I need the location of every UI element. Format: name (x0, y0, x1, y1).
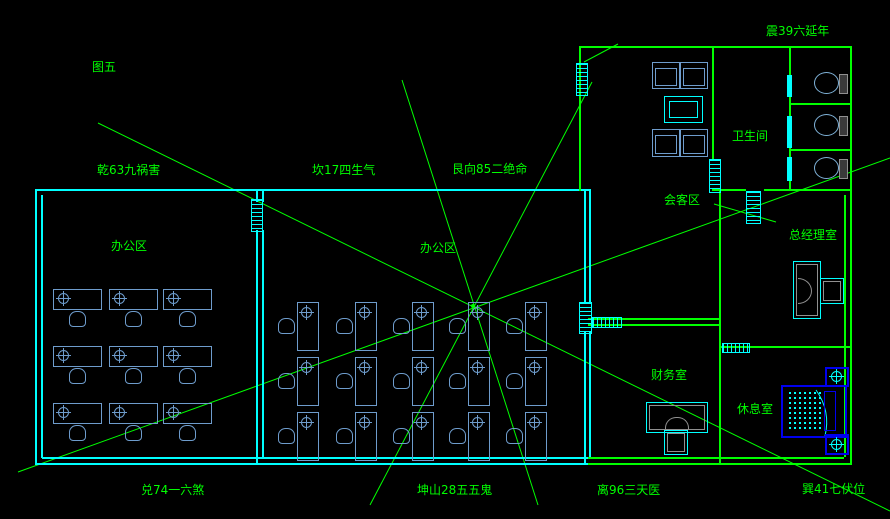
annotation-xun: 巽41七伏位 (802, 482, 865, 496)
monitor-icon (529, 362, 540, 373)
shower-dot (799, 412, 801, 414)
shower-dot (804, 427, 806, 429)
annotation-gen: 艮向85二绝命 (452, 162, 527, 176)
wall-bottom-right-outer (588, 463, 852, 465)
wall-annex-top (579, 46, 852, 48)
shower-dot (809, 417, 811, 419)
label-office-left: 办公区 (111, 239, 147, 253)
toilet-icon (814, 114, 839, 136)
shower-dot (794, 402, 796, 404)
label-finance: 财务室 (651, 368, 687, 382)
toilet-tank-icon (839, 116, 848, 136)
window-annex (576, 63, 588, 96)
shower-dot (799, 402, 801, 404)
shower-dot (809, 427, 811, 429)
shower-dot (819, 422, 821, 424)
office-chair (278, 373, 295, 389)
office-chair (179, 425, 196, 441)
office-chair (506, 373, 523, 389)
annotation-dui: 兑74一六煞 (141, 483, 204, 497)
door-office-middle (579, 302, 592, 334)
monitor-icon (114, 350, 125, 361)
annotation-zhen: 震39六延年 (766, 24, 829, 38)
shower-dot (794, 427, 796, 429)
shower-dot (794, 422, 796, 424)
monitor-icon (472, 362, 483, 373)
toilet-icon (814, 72, 839, 94)
window-gm-bottom (722, 343, 750, 353)
window-meeting-bottom (592, 317, 622, 328)
monitor-icon (301, 417, 312, 428)
shower-dot (804, 397, 806, 399)
shower-dot (794, 392, 796, 394)
door-office-left (251, 199, 263, 232)
shower-dot (799, 427, 801, 429)
monitor-icon (58, 407, 69, 418)
monitor-icon (168, 293, 179, 304)
shower-dot (814, 427, 816, 429)
shower-dot (789, 412, 791, 414)
shower-dot (819, 402, 821, 404)
door-restroom (709, 159, 721, 193)
sector-lines (0, 0, 890, 519)
gm-desk (793, 261, 821, 319)
office-chair (336, 318, 353, 334)
monitor-icon (472, 417, 483, 428)
monitor-icon (359, 307, 370, 318)
shower-dot (804, 412, 806, 414)
shower-dot (799, 417, 801, 419)
sofa (652, 62, 680, 89)
wall-divider1 (256, 230, 258, 464)
wall-gm-left (719, 191, 721, 463)
shower-dot (814, 397, 816, 399)
wall-stall-div2 (789, 149, 850, 151)
shower-dot (814, 407, 816, 409)
wall-bath-left (712, 48, 714, 159)
monitor-icon (58, 293, 69, 304)
label-meeting-area: 会客区 (664, 193, 700, 207)
cad-floorplan-canvas[interactable]: 图五 震39六延年 乾63九祸害 坎17四生气 艮向85二绝命 兑74一六煞 坤… (0, 0, 890, 519)
office-chair (125, 311, 142, 327)
door-meeting (746, 191, 761, 224)
label-gm-office: 总经理室 (789, 228, 837, 242)
shower-dot (789, 392, 791, 394)
monitor-icon (168, 350, 179, 361)
label-lounge: 休息室 (737, 402, 773, 416)
wall-divider2 (584, 189, 586, 303)
wall-divider2b (589, 189, 591, 303)
annotation-qian: 乾63九祸害 (97, 163, 160, 177)
office-chair (393, 373, 410, 389)
lounge-fixture-top (825, 367, 849, 387)
sofa (680, 129, 708, 157)
stall-door-3 (787, 157, 792, 181)
coffee-table (664, 96, 703, 123)
shower-dot (809, 402, 811, 404)
label-office-middle: 办公区 (420, 241, 456, 255)
label-restroom: 卫生间 (732, 129, 768, 143)
shower-dot (799, 392, 801, 394)
gm-chair (820, 278, 844, 304)
monitor-icon (472, 307, 483, 318)
monitor-icon (114, 407, 125, 418)
office-chair (336, 428, 353, 444)
stall-door-2 (787, 116, 792, 148)
monitor-icon (416, 307, 427, 318)
shower-dot (794, 412, 796, 414)
office-chair (506, 318, 523, 334)
finance-chair (664, 430, 688, 455)
shower-dot (814, 417, 816, 419)
office-chair (69, 425, 86, 441)
shower-dot (799, 422, 801, 424)
monitor-icon (359, 417, 370, 428)
shower-dot (819, 427, 821, 429)
office-chair (69, 311, 86, 327)
office-chair (69, 368, 86, 384)
shower-door-panel (824, 391, 836, 431)
wall-divider2 (584, 332, 586, 464)
shower-dot (814, 402, 816, 404)
monitor-icon (416, 417, 427, 428)
finance-desk (646, 402, 708, 433)
shower-dot (799, 407, 801, 409)
annotation-kan: 坎17四生气 (312, 163, 375, 177)
annotation-li: 离96三天医 (597, 483, 660, 497)
monitor-icon (168, 407, 179, 418)
lounge-fixture-bottom (825, 434, 849, 455)
shower-dot (794, 417, 796, 419)
monitor-icon (114, 293, 125, 304)
shower-dot (789, 407, 791, 409)
shower-dot (789, 402, 791, 404)
wall-left-inner (41, 195, 43, 458)
shower-dot (814, 422, 816, 424)
shower-dot (804, 417, 806, 419)
wall-bottom-outer (35, 463, 590, 465)
office-chair (179, 311, 196, 327)
shower-dot (789, 417, 791, 419)
wall-right-outer (850, 46, 852, 465)
shower-dot (804, 402, 806, 404)
sofa (652, 129, 680, 157)
wall-divider2b (589, 332, 591, 458)
office-chair (336, 373, 353, 389)
office-chair (449, 428, 466, 444)
monitor-icon (359, 362, 370, 373)
office-chair (449, 318, 466, 334)
monitor-icon (301, 307, 312, 318)
monitor-icon (529, 307, 540, 318)
office-chair (393, 318, 410, 334)
shower-dot (804, 422, 806, 424)
office-chair (278, 318, 295, 334)
office-chair (125, 368, 142, 384)
wall-bath-bottom (764, 189, 852, 191)
shower-dot (804, 392, 806, 394)
wall-bottom-right-inner (588, 457, 844, 459)
toilet-icon (814, 157, 839, 179)
figure-label: 图五 (92, 60, 116, 74)
shower-dot (819, 397, 821, 399)
monitor-icon (529, 417, 540, 428)
monitor-icon (416, 362, 427, 373)
shower-dot (819, 417, 821, 419)
wall-left-outer (35, 189, 37, 465)
shower-dot (789, 397, 791, 399)
shower-dot (809, 407, 811, 409)
shower-dot (819, 407, 821, 409)
wall-divider1b (262, 230, 264, 458)
shower-dot (794, 397, 796, 399)
shower-dot (819, 392, 821, 394)
stall-door-1 (787, 75, 792, 97)
monitor-icon (58, 350, 69, 361)
shower-dot (809, 422, 811, 424)
shower-dot (789, 427, 791, 429)
toilet-tank-icon (839, 159, 848, 179)
shower-dot (804, 407, 806, 409)
monitor-icon (301, 362, 312, 373)
shower-dot (814, 392, 816, 394)
shower-dot (809, 397, 811, 399)
wall-top-main (35, 189, 590, 191)
office-chair (179, 368, 196, 384)
toilet-tank-icon (839, 74, 848, 94)
office-chair (393, 428, 410, 444)
wall-stall-div1 (789, 103, 850, 105)
sofa (680, 62, 708, 89)
shower-dot (794, 407, 796, 409)
shower-dot (809, 412, 811, 414)
office-chair (449, 373, 466, 389)
annotation-kun: 坤山28五五鬼 (417, 483, 492, 497)
shower-dot (799, 397, 801, 399)
shower-dot (789, 422, 791, 424)
shower-dot (819, 412, 821, 414)
office-chair (506, 428, 523, 444)
office-chair (125, 425, 142, 441)
shower-dot (814, 412, 816, 414)
office-chair (278, 428, 295, 444)
shower-dot (809, 392, 811, 394)
